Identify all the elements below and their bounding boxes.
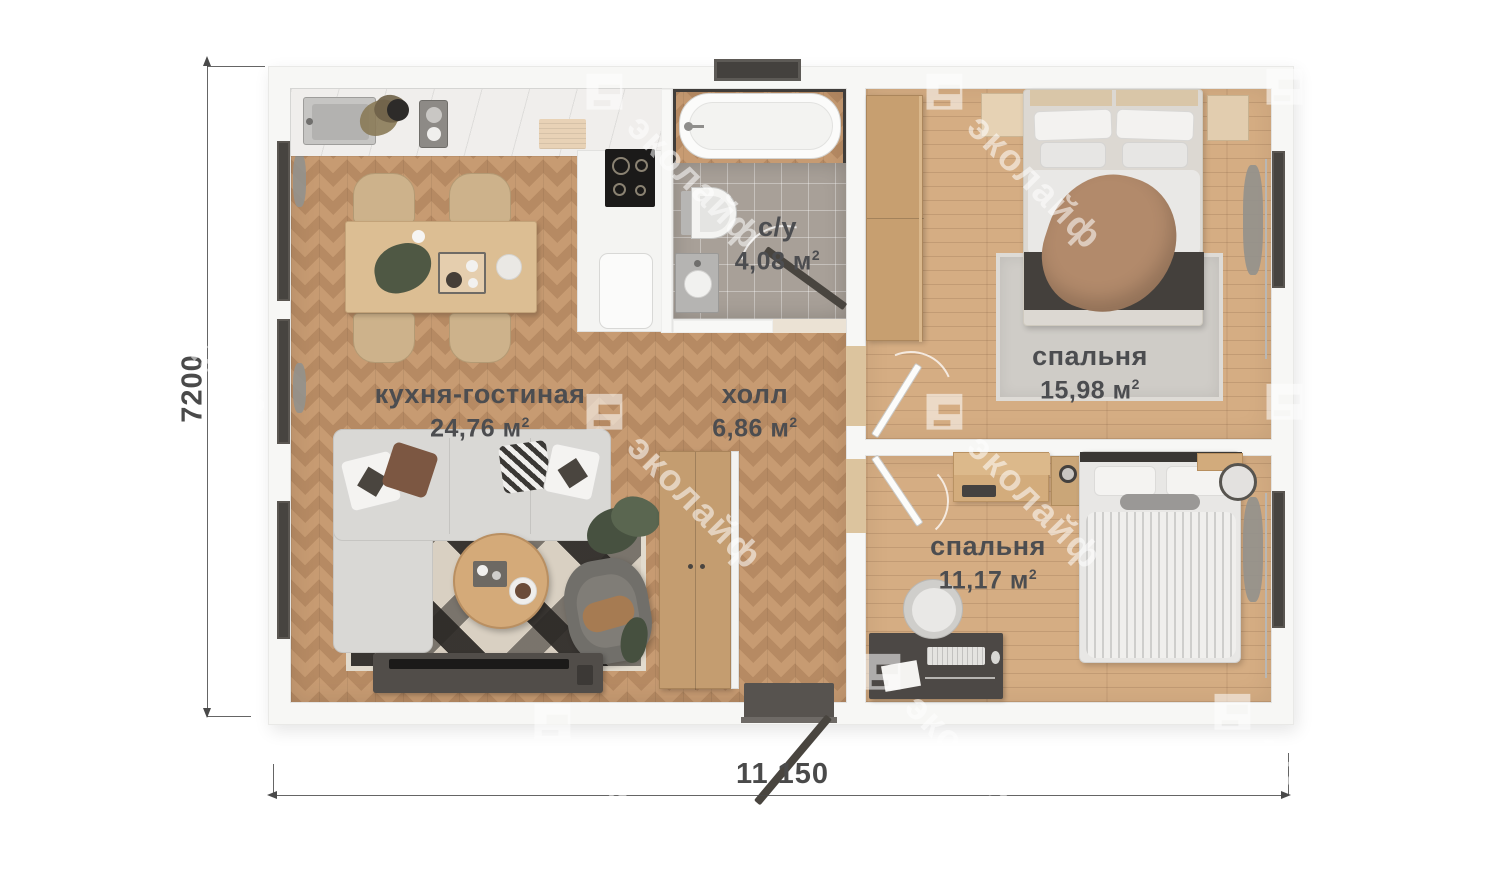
dining-chair xyxy=(353,313,415,363)
ecolife-logo-icon xyxy=(94,664,170,740)
curtain-left-2 xyxy=(293,363,306,413)
dim-arrow-left xyxy=(267,791,277,799)
dim-tick-left xyxy=(273,764,274,795)
label-bathroom: с/у 4,08 м2 xyxy=(715,212,840,276)
dim-label-bottom: 11 150 xyxy=(695,758,870,791)
room-name: кухня-гостиная xyxy=(355,379,605,410)
dim-arrow-right xyxy=(1281,791,1291,799)
hall-wardrobe-side-panel xyxy=(731,451,739,689)
bathroom-bottom-wall xyxy=(673,319,773,333)
washbasin xyxy=(675,253,719,313)
coffee-table xyxy=(453,533,549,629)
floor-plant-small xyxy=(621,607,649,679)
dim-tick-right xyxy=(1288,753,1289,795)
room-name: спальня xyxy=(995,341,1185,372)
dim-line-horizontal xyxy=(273,795,1288,796)
dim-arrow-up xyxy=(203,56,211,66)
hall-wardrobe xyxy=(659,451,731,689)
room-area: 6,86 м2 xyxy=(690,414,820,443)
dim-tick-top xyxy=(207,66,265,67)
room-name: спальня xyxy=(893,531,1083,562)
dining-chair xyxy=(449,173,511,223)
bed-large xyxy=(1023,89,1203,326)
bedroom-large-wardrobe xyxy=(866,95,923,341)
window-left-1 xyxy=(277,141,290,301)
bathroom-left-wall xyxy=(661,89,673,333)
bathroom-door-threshold xyxy=(773,319,846,333)
window-left-3 xyxy=(277,501,290,639)
floor-plan-render: кухня-гостиная 24,76 м2 холл 6,86 м2 с/у… xyxy=(0,0,1500,844)
room-area: 24,76 м2 xyxy=(355,414,605,443)
nightstand-left xyxy=(981,93,1025,137)
ecolife-logo-icon xyxy=(74,224,150,300)
dining-chair xyxy=(353,173,415,223)
window-right-bedroom-large xyxy=(1272,151,1285,288)
curtain-bedroom-small xyxy=(1243,497,1263,602)
sofa-pillow xyxy=(542,442,601,501)
cooktop xyxy=(605,149,655,207)
cutting-board xyxy=(419,100,448,148)
curtain-rail-bedroom-small xyxy=(1265,493,1267,678)
bathroom xyxy=(661,89,846,333)
counter-mat xyxy=(539,119,586,149)
bench-right xyxy=(1207,95,1249,141)
window-top xyxy=(714,59,801,81)
label-hall: холл 6,86 м2 xyxy=(690,379,820,443)
watermark: эколайф xyxy=(0,0,88,172)
bed-small xyxy=(1079,451,1241,663)
desk xyxy=(869,633,1003,699)
window-left-2 xyxy=(277,319,290,444)
dim-tick-bottom xyxy=(207,716,251,717)
label-kitchen-living: кухня-гостиная 24,76 м2 xyxy=(355,379,605,443)
door-threshold-bedroom-large xyxy=(846,346,866,426)
room-name: холл xyxy=(690,379,820,410)
counter-bowl xyxy=(387,99,409,121)
fridge xyxy=(599,253,653,329)
curtain-left-1 xyxy=(293,153,306,207)
tv-console xyxy=(373,653,603,693)
dining-chair xyxy=(449,313,511,363)
label-bedroom-large: спальня 15,98 м2 xyxy=(995,341,1185,405)
room-name: с/у xyxy=(715,212,840,243)
dining-table xyxy=(345,221,537,313)
label-bedroom-small: спальня 11,17 м2 xyxy=(893,531,1083,595)
dressing-mirror xyxy=(1219,463,1257,501)
room-area: 4,08 м2 xyxy=(715,247,840,276)
bedroom-small-shelf xyxy=(953,452,1049,502)
door-threshold-bedroom-small xyxy=(846,459,866,533)
bathtub xyxy=(679,93,841,159)
floor-plant-large xyxy=(586,497,660,561)
room-area: 11,17 м2 xyxy=(893,566,1083,595)
dim-label-left: 7200 xyxy=(177,344,210,434)
curtain-rail-bedroom-large xyxy=(1265,159,1267,359)
room-area: 15,98 м2 xyxy=(995,376,1185,405)
window-right-bedroom-small xyxy=(1272,491,1285,628)
curtain-bedroom-large xyxy=(1243,165,1263,275)
